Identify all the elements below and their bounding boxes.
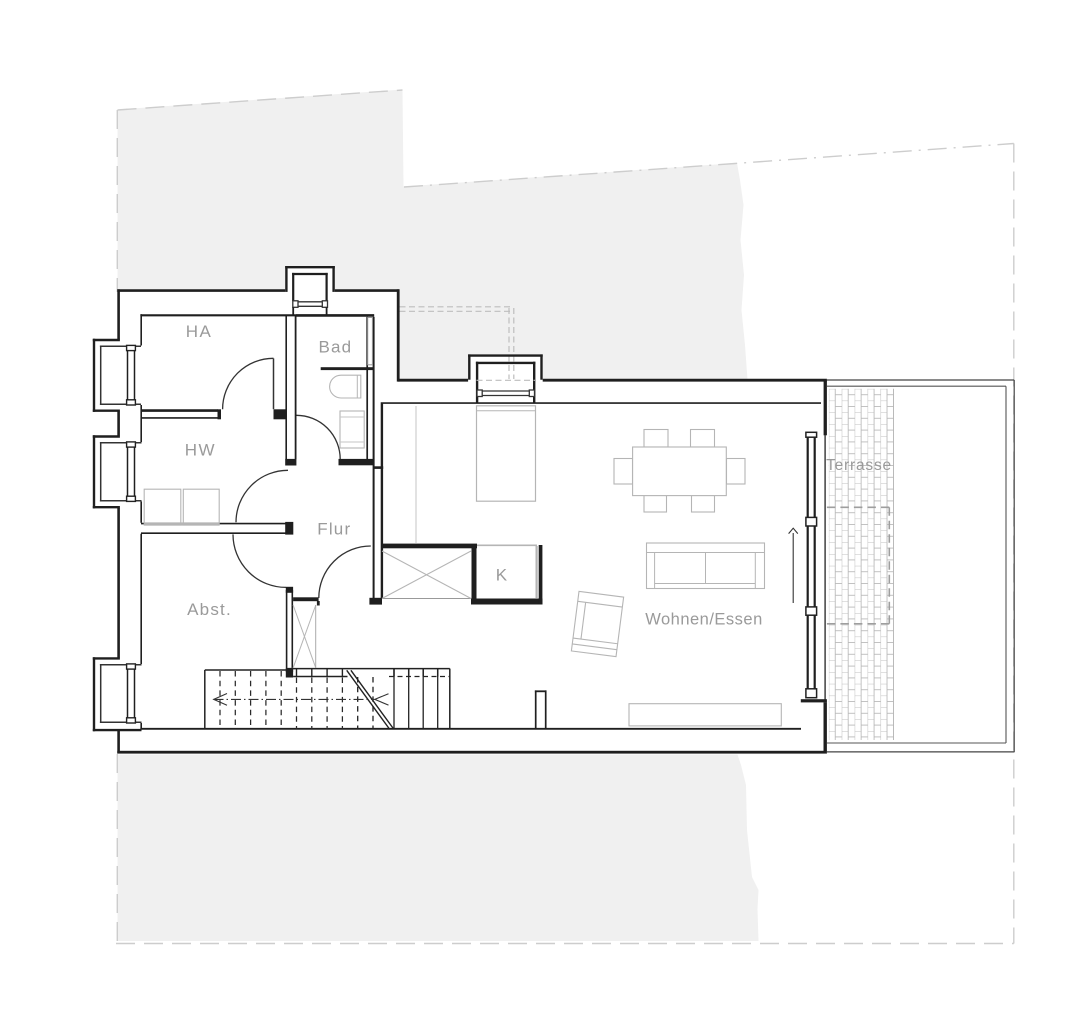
- svg-text:K: K: [496, 566, 509, 585]
- svg-text:Bad: Bad: [318, 338, 352, 357]
- svg-text:HW: HW: [185, 441, 216, 460]
- svg-text:Terrasse: Terrasse: [826, 457, 892, 474]
- svg-text:Wohnen/Essen: Wohnen/Essen: [645, 611, 763, 629]
- svg-text:HA: HA: [186, 322, 213, 341]
- svg-text:Abst.: Abst.: [187, 600, 232, 619]
- svg-text:Flur: Flur: [317, 520, 351, 539]
